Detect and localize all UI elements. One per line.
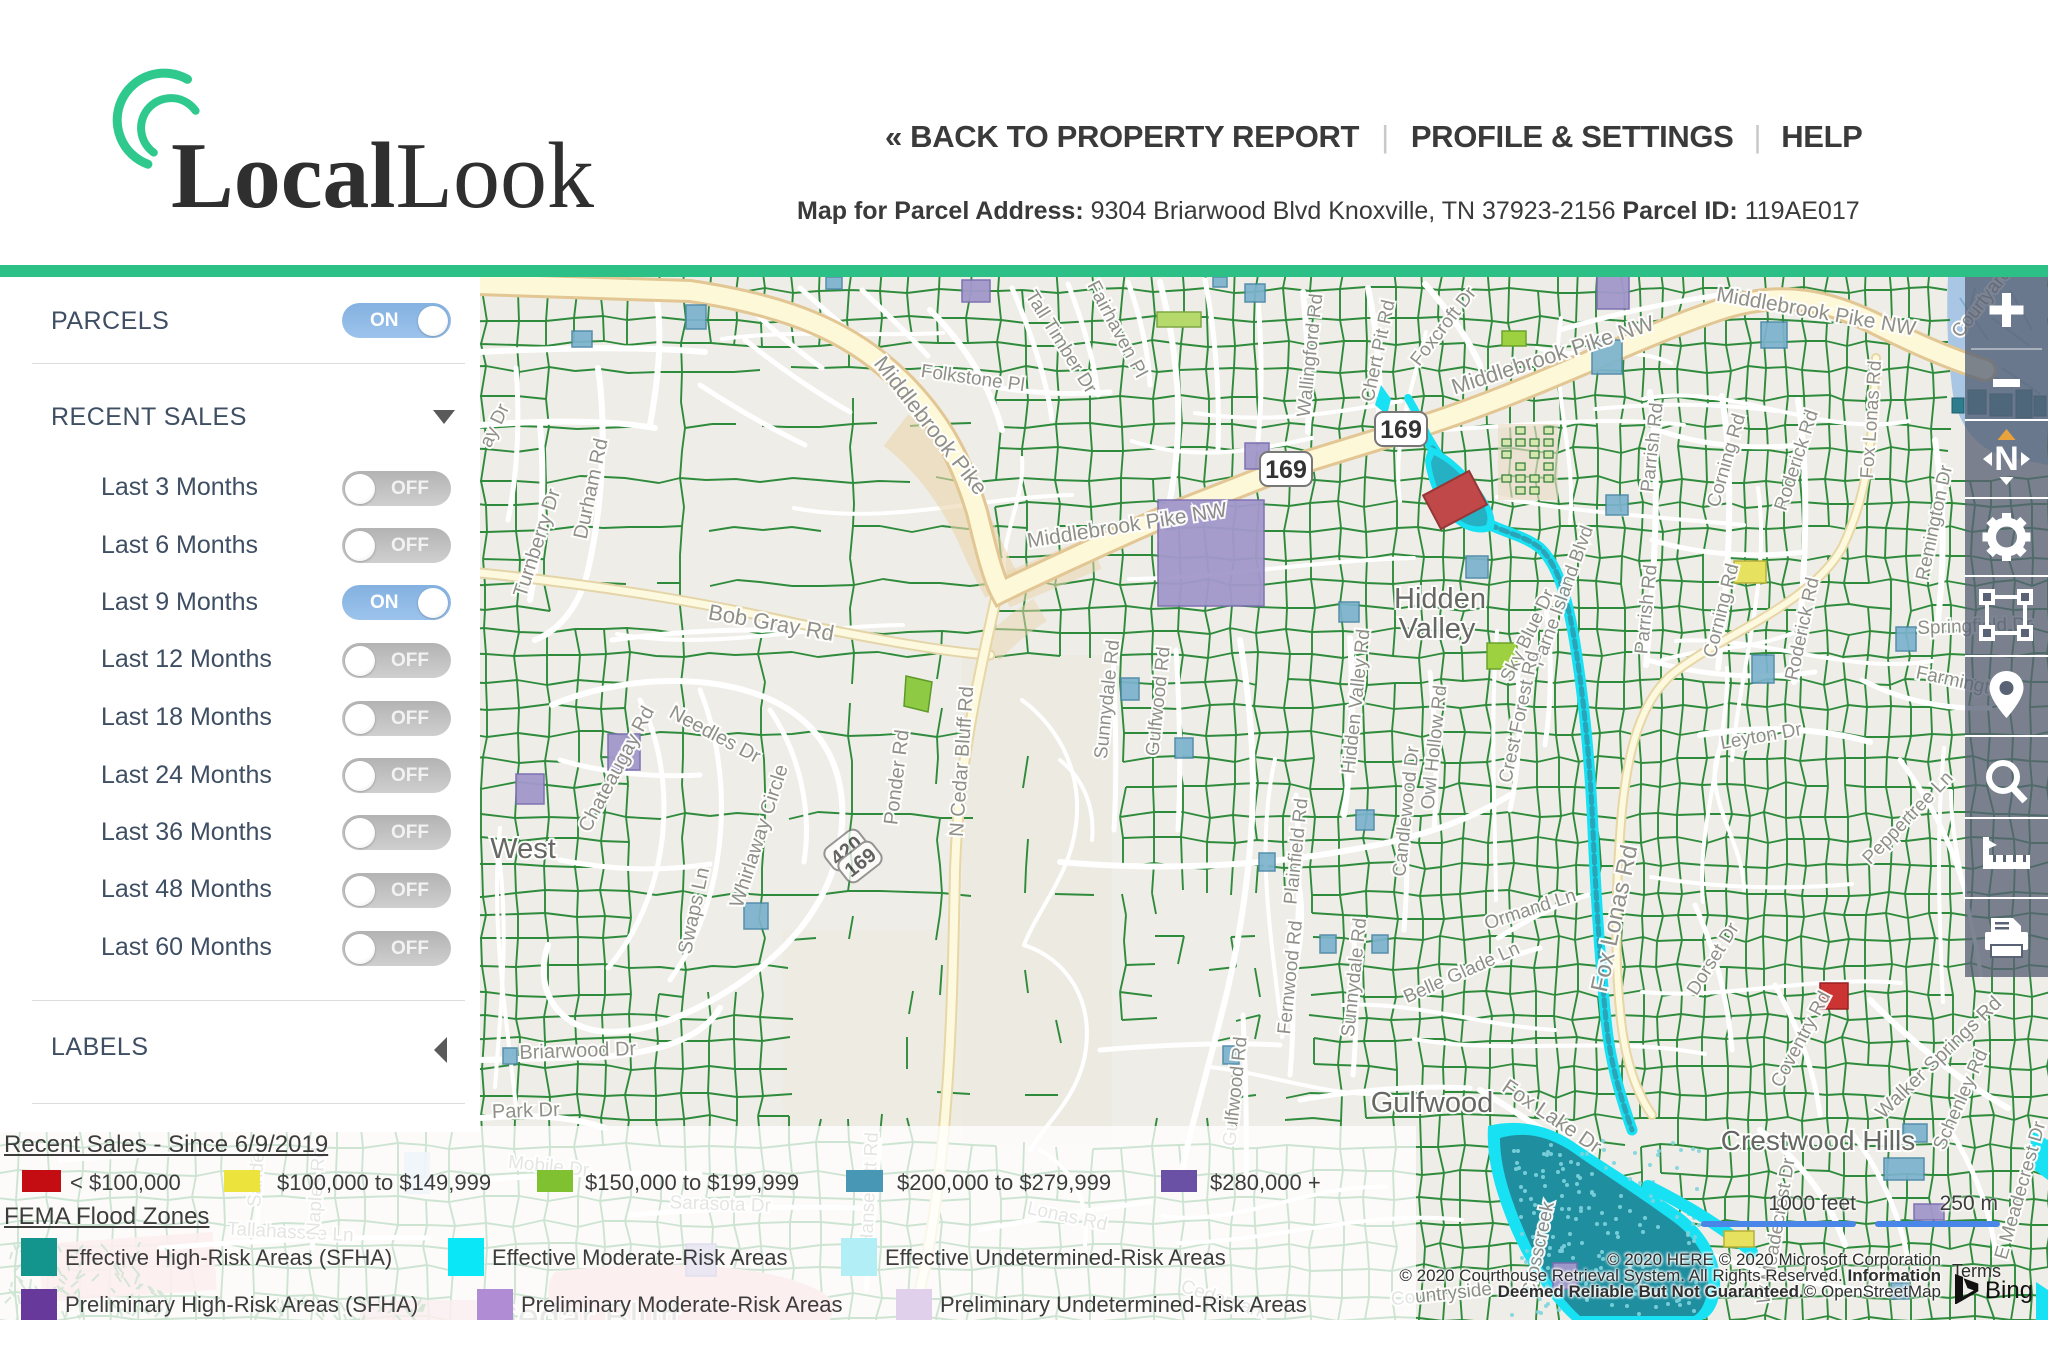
- svg-text:Bing: Bing: [1985, 1277, 2033, 1304]
- svg-text:N: N: [1994, 440, 2019, 478]
